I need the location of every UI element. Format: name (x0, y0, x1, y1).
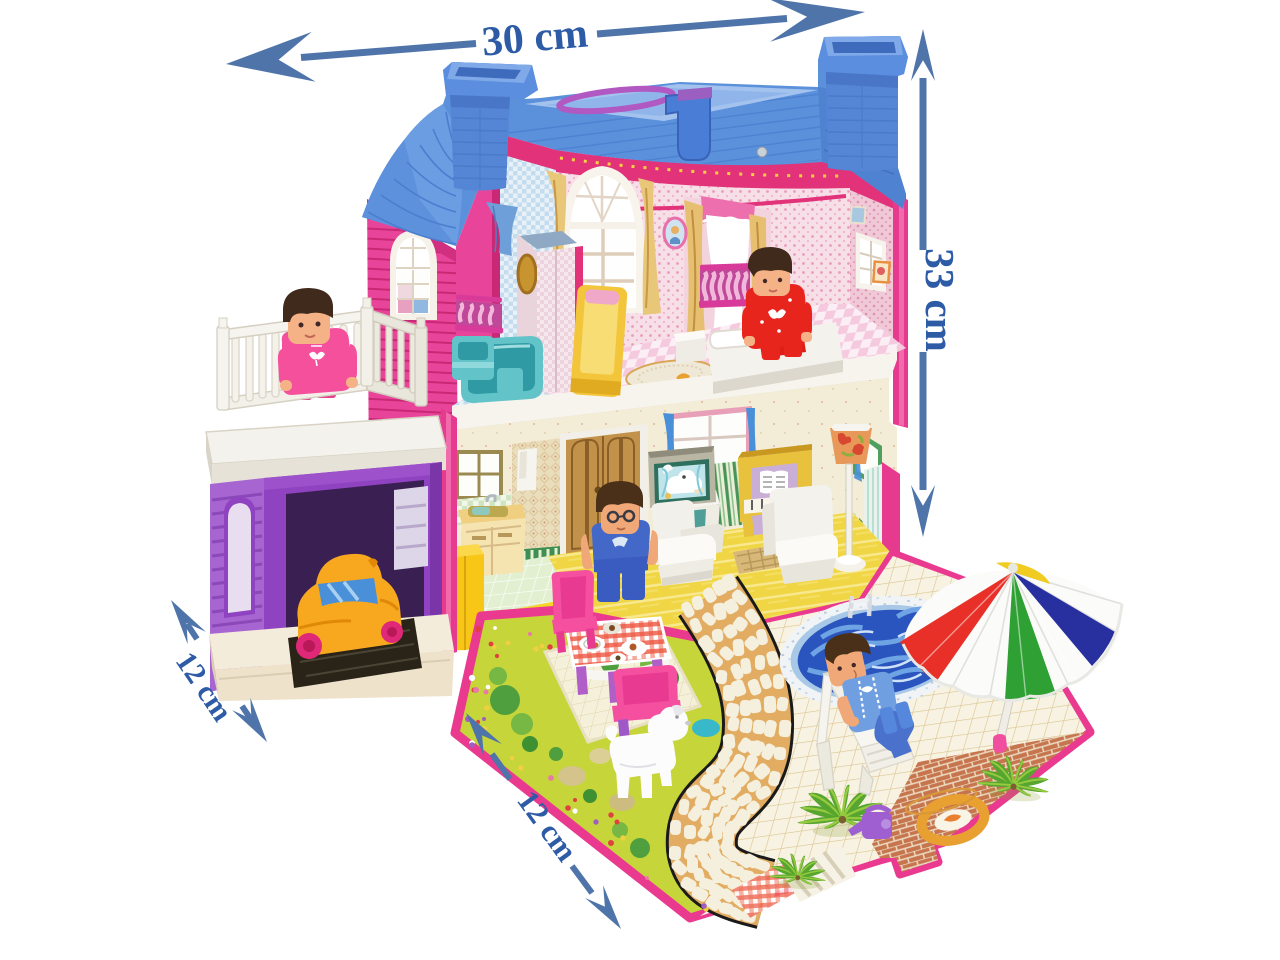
svg-text:30 cm: 30 cm (480, 11, 590, 66)
svg-text:33 cm: 33 cm (917, 248, 963, 352)
